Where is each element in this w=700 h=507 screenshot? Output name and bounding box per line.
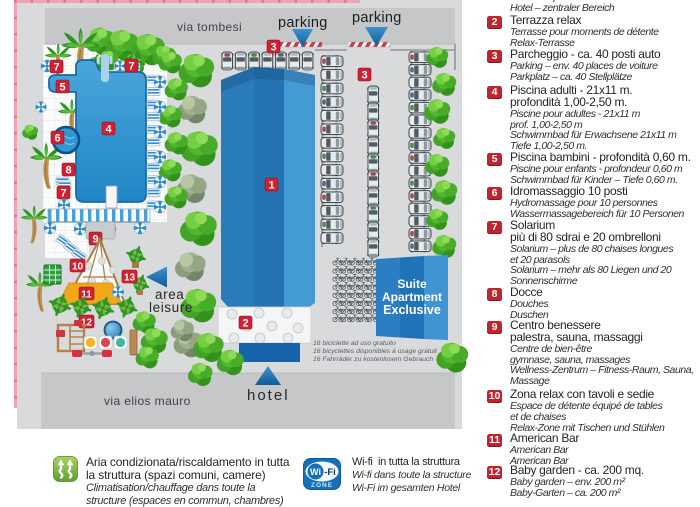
svg-text:leisure: leisure <box>149 300 193 315</box>
svg-text:12: 12 <box>81 317 93 328</box>
svg-text:Wi: Wi <box>310 467 321 477</box>
svg-text:13: 13 <box>124 272 136 283</box>
svg-text:16 Fahrräder zu kostenlosem Ge: 16 Fahrräder zu kostenlosem Gebrauch <box>313 356 433 363</box>
svg-text:3: 3 <box>361 69 367 81</box>
svg-text:via elios mauro: via elios mauro <box>104 394 191 408</box>
svg-text:TM: TM <box>341 461 343 465</box>
svg-text:parking: parking <box>278 15 328 31</box>
svg-text:4: 4 <box>105 123 112 135</box>
svg-text:10: 10 <box>72 261 84 272</box>
svg-text:7: 7 <box>53 61 59 73</box>
svg-text:hotel: hotel <box>247 387 290 404</box>
svg-text:-Fi: -Fi <box>324 467 336 478</box>
svg-text:16 bicyclettes disponibles à u: 16 bicyclettes disponibles à usage gratu… <box>313 348 438 355</box>
svg-text:Exclusive: Exclusive <box>383 303 441 317</box>
svg-text:6: 6 <box>54 132 60 144</box>
svg-text:via tombesi: via tombesi <box>177 20 242 34</box>
svg-text:2: 2 <box>242 317 248 329</box>
svg-text:16 biciclette ad uso gratuito: 16 biciclette ad uso gratuito <box>313 340 396 347</box>
svg-text:5: 5 <box>59 81 65 93</box>
svg-text:7: 7 <box>128 60 134 72</box>
svg-text:1: 1 <box>268 179 274 191</box>
svg-text:3: 3 <box>270 41 276 53</box>
svg-text:Apartment: Apartment <box>382 290 442 304</box>
svg-text:ZONE: ZONE <box>311 482 333 489</box>
svg-text:Suite: Suite <box>397 277 427 291</box>
svg-text:parking: parking <box>352 10 402 26</box>
svg-text:8: 8 <box>65 164 71 176</box>
svg-text:7: 7 <box>60 187 66 199</box>
